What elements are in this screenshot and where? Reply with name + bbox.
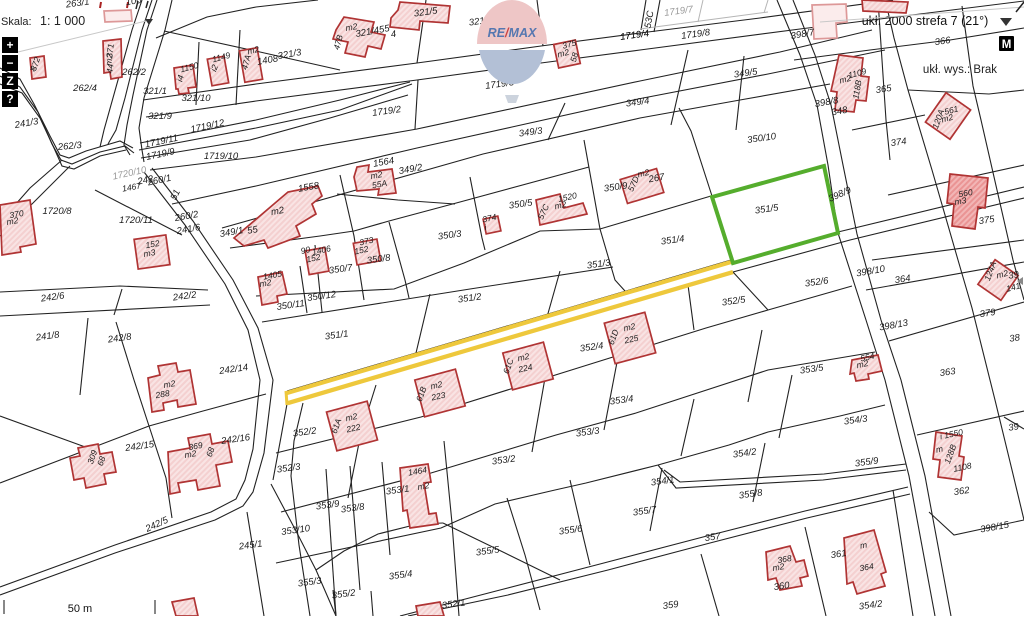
- svg-text:374: 374: [890, 136, 907, 149]
- svg-text:359: 359: [662, 599, 680, 612]
- svg-text:362: 362: [953, 485, 971, 498]
- svg-text:−: −: [6, 56, 13, 70]
- svg-text:365: 365: [875, 83, 893, 96]
- svg-text:m2: m2: [259, 277, 273, 289]
- svg-text:321/9: 321/9: [148, 111, 172, 122]
- svg-text:ukł. 2000 strefa 7 (21°): ukł. 2000 strefa 7 (21°): [862, 14, 989, 28]
- svg-text:+: +: [6, 38, 13, 52]
- svg-text:m2: m2: [6, 215, 20, 227]
- svg-text:363: 363: [939, 366, 957, 379]
- svg-text:321/1: 321/1: [143, 86, 167, 97]
- svg-text:Z: Z: [6, 74, 13, 88]
- svg-text:375: 375: [978, 214, 996, 227]
- svg-text:1720/11: 1720/11: [119, 215, 153, 226]
- svg-text:262/4: 262/4: [72, 83, 97, 94]
- svg-text:321/10: 321/10: [181, 93, 211, 104]
- svg-text:44: 44: [104, 63, 115, 74]
- svg-text:50 m: 50 m: [68, 603, 92, 615]
- svg-text:1720/8: 1720/8: [42, 206, 72, 217]
- svg-text:ukł. wys.: Brak: ukł. wys.: Brak: [923, 64, 997, 76]
- svg-text:m3: m3: [954, 195, 968, 207]
- svg-text:379: 379: [979, 307, 997, 320]
- svg-text:366: 366: [934, 35, 952, 48]
- svg-text:m3: m3: [143, 247, 157, 259]
- svg-text:360: 360: [773, 580, 791, 593]
- svg-text:1719/10: 1719/10: [204, 151, 239, 162]
- svg-text:?: ?: [6, 92, 13, 106]
- svg-text:357: 357: [704, 531, 722, 544]
- svg-text:262/2: 262/2: [121, 67, 146, 78]
- svg-text:1: 1 000: 1: 1 000: [40, 14, 85, 28]
- svg-text:361: 361: [830, 548, 847, 561]
- svg-text:364: 364: [894, 273, 911, 286]
- svg-text:262/3: 262/3: [56, 140, 82, 153]
- svg-text:RE/MAX: RE/MAX: [488, 26, 537, 40]
- svg-text:Skala:: Skala:: [1, 16, 32, 28]
- svg-text:m2: m2: [417, 480, 431, 492]
- svg-text:m2: m2: [184, 448, 198, 460]
- svg-text:M: M: [1002, 39, 1012, 51]
